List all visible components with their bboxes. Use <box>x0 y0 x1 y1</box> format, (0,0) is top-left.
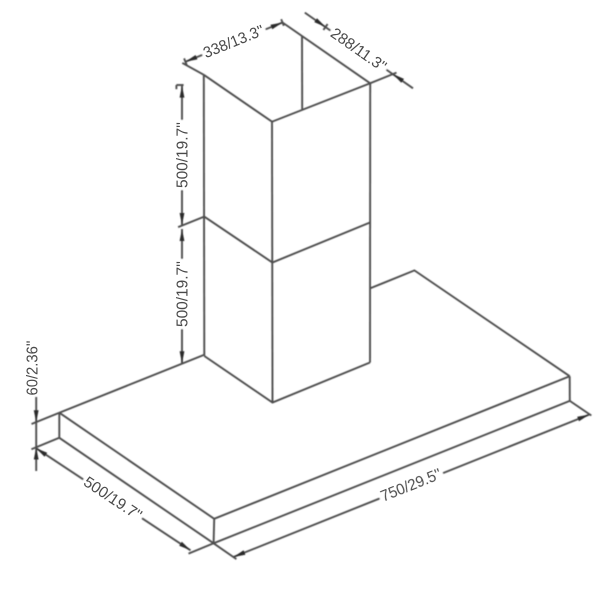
svg-text:338/13.3'': 338/13.3'' <box>201 22 267 62</box>
svg-text:60/2.36'': 60/2.36'' <box>25 340 42 395</box>
svg-text:750/29.5'': 750/29.5'' <box>378 466 444 506</box>
svg-text:288/11.3'': 288/11.3'' <box>327 25 389 76</box>
svg-text:500/19.7'': 500/19.7'' <box>174 122 191 188</box>
svg-text:500/19.7'': 500/19.7'' <box>80 474 144 525</box>
svg-text:500/19.7'': 500/19.7'' <box>174 261 191 327</box>
